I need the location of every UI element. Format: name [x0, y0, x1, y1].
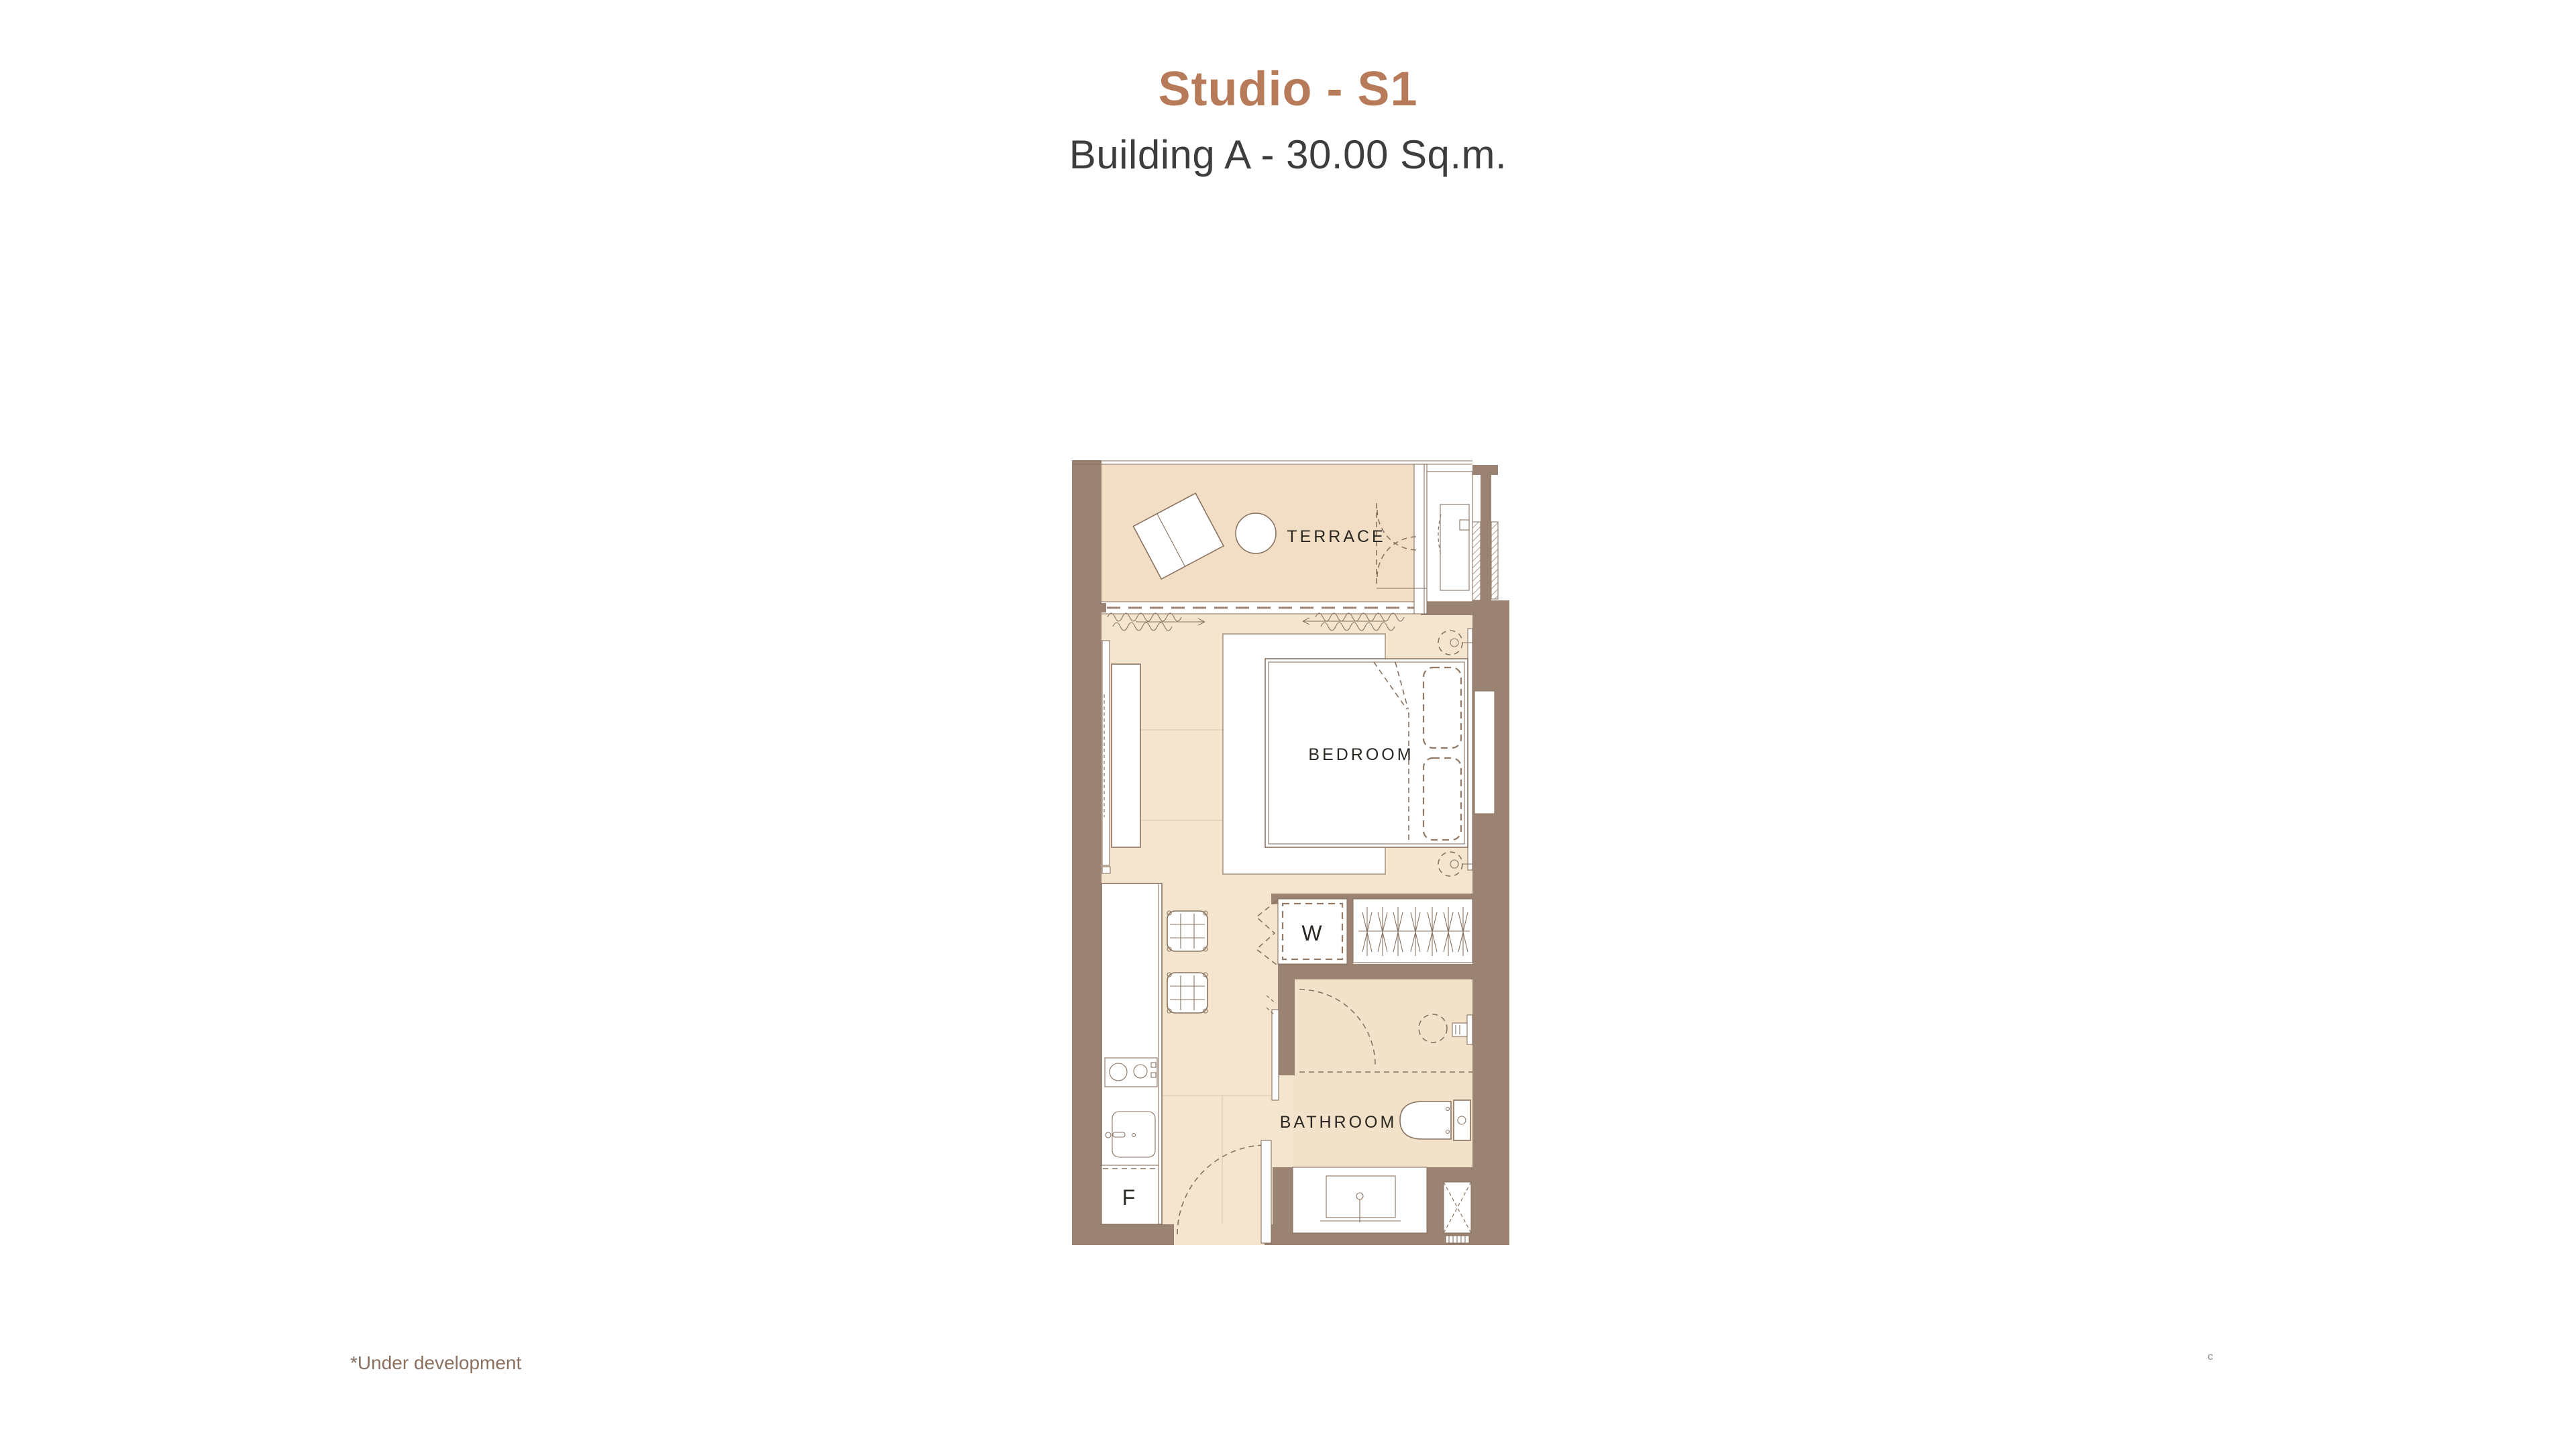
bedroom-label: BEDROOM — [1308, 745, 1413, 764]
under-development-note: *Under development — [350, 1352, 521, 1374]
left-wall — [1072, 460, 1102, 1245]
closet-zone — [1256, 899, 1472, 965]
terrace-mullion — [1414, 464, 1427, 614]
page-subtitle: Building A - 30.00 Sq.m. — [0, 131, 2576, 178]
terrace-table — [1236, 513, 1276, 553]
vent-hatch-inner — [1472, 522, 1481, 600]
entrance-threshold — [1174, 1224, 1265, 1245]
bathroom-left-wall-upper — [1278, 979, 1295, 1075]
ac-condenser-unit — [1440, 504, 1469, 590]
floor-plan: TERRACE BEDROOM BATHROOM W F — [1071, 451, 1511, 1245]
closet-top-wall — [1271, 894, 1472, 899]
terrace-bedroom-wall-right — [1421, 600, 1509, 615]
kitchen-sink — [1106, 1112, 1155, 1157]
bathroom-label: BATHROOM — [1280, 1113, 1397, 1132]
stove — [1105, 1058, 1157, 1087]
stool-1 — [1167, 911, 1207, 951]
kitchen — [1102, 883, 1162, 1224]
bathroom-top-wall — [1278, 964, 1472, 979]
stray-mark: c — [2208, 1351, 2213, 1363]
floor-plan-container: TERRACE BEDROOM BATHROOM W F — [1071, 451, 1511, 1245]
tv-ledge — [1102, 641, 1110, 865]
bedroom-curtain-track — [1468, 629, 1472, 870]
vent-hatch-outer — [1491, 522, 1498, 599]
washer-wardrobe-divider — [1347, 899, 1353, 964]
bedroom-wall-niche — [1474, 691, 1495, 814]
tv-console — [1112, 664, 1140, 847]
terrace-label: TERRACE — [1287, 527, 1385, 546]
fridge-label: F — [1122, 1185, 1136, 1210]
page-title: Studio - S1 — [0, 62, 2576, 117]
bottom-wall-left — [1072, 1224, 1174, 1245]
vanity — [1293, 1167, 1427, 1233]
top-right-cap-wall — [1472, 465, 1498, 475]
washer-label: W — [1301, 921, 1322, 945]
page: { "header": { "title": "Studio - S1", "s… — [0, 0, 2576, 1449]
ac-ledge-wall — [1481, 475, 1491, 602]
right-wall-wardrobe — [1472, 894, 1509, 979]
toilet — [1400, 1100, 1470, 1140]
stool-2 — [1167, 973, 1207, 1013]
